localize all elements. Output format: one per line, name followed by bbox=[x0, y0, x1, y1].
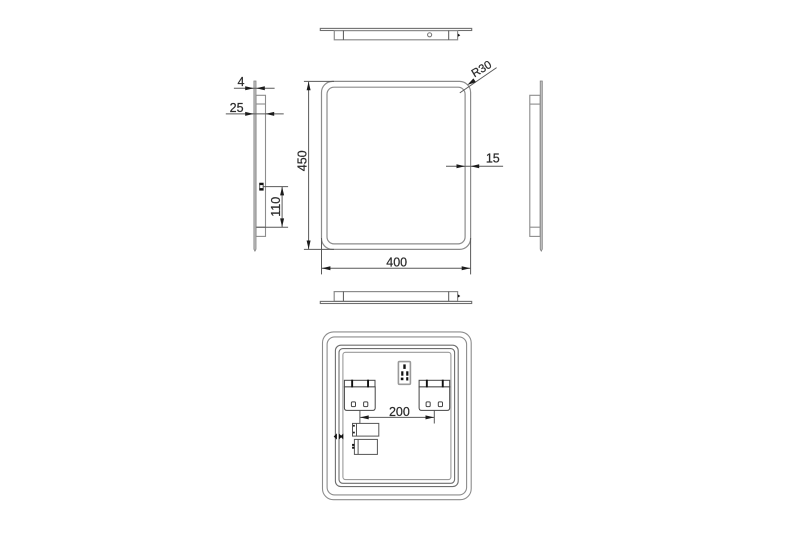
svg-text:15: 15 bbox=[486, 152, 500, 166]
svg-text:4: 4 bbox=[238, 75, 245, 89]
svg-text:400: 400 bbox=[386, 255, 407, 269]
svg-text:450: 450 bbox=[296, 150, 310, 171]
svg-text:110: 110 bbox=[269, 197, 283, 217]
svg-text:200: 200 bbox=[389, 405, 410, 419]
svg-text:25: 25 bbox=[230, 101, 244, 115]
